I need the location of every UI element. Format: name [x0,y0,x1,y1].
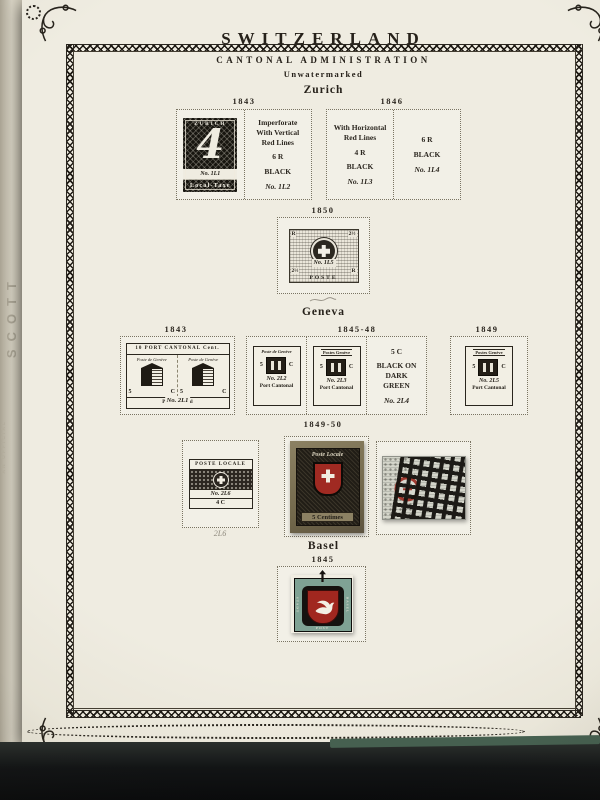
stamp-inscription: Port Cantonal No. 2L1 [127,397,229,408]
stamp-space-zurich-1846: With Horizontal Red Lines 4 R BLACK No. … [326,109,461,200]
space-desc: Red Lines [262,138,294,148]
stamp-space-zurich-1843: ZURICH 4 No. 1L1 Local-Taxe Imperforate … [176,109,312,200]
space-desc: Imperforate [258,118,297,128]
stamp-corner-value: 2½ [291,268,300,274]
stamp-space-geneva-1845-48: Poste de Genève 5C No. 2L2 Port Cantonal… [246,336,427,415]
stamp-value: C [171,389,175,395]
stamp-inscription: Postes Genève [473,349,504,356]
catalog-number: No. 1L3 [348,177,373,186]
basel-dove-design: STADT BASEL POST [294,578,352,632]
stamp-space-geneva-5c: Poste Locale 5 Centimes [284,436,369,537]
space-desc: Red Lines [344,133,376,143]
album-photo: SCOTT AN OFFICIAL SWITZERLAND CANTONAL A… [0,0,600,800]
space-value: 5 C [391,347,402,357]
corner-flourish-icon [566,1,600,43]
section-heading-geneva: Geneva [76,306,571,318]
catalog-number: No. 2L3 [327,378,347,384]
stamp-cell-basel: STADT BASEL POST [278,567,365,641]
stamp-inscription: Port Cantonal [260,383,293,389]
stamp-space-geneva-1843: 10 PORT CANTONAL Cent. Poste de Genève 5… [120,336,235,415]
year-label-geneva-1845-48: 1845-48 [338,324,377,334]
space-desc: With Vertical [256,128,299,138]
stamp-cell-1l2: Imperforate With Vertical Red Lines 6 R … [244,110,312,199]
stamp-inscription: Poste de Genève [261,349,291,354]
pencil-squiggle [308,296,338,304]
page-title: SWITZERLAND [76,29,571,49]
geneva-2l5-space: Postes Genève 5C No. 2L5 Port Cantonal [465,346,513,406]
geneva-arms-icon [478,359,498,376]
stamp-cell-2l6: POSTE LOCALE No. 2L6 4 C [183,441,258,527]
stamp-cell-1l5: R 2½ 2½ R No. 1L5 POSTE [278,218,369,293]
stamp-corner-letter: R [291,231,297,237]
stamp-inscription: BASEL [346,597,350,613]
stamp-inscription: POST [295,626,351,630]
double-geneva-right-half: Poste de Genève 5 C [178,355,229,397]
space-value: 6 R [421,135,432,145]
stamp-space-basel: STADT BASEL POST [277,566,366,642]
basel-dove-stamp: STADT BASEL POST [291,575,353,633]
catalog-number: No. 2L4 [384,396,409,405]
space-value: 4 R [354,148,365,158]
stamp-cell-4c [377,442,470,534]
stamp-cell-1l1: ZURICH 4 No. 1L1 Local-Taxe [177,110,244,199]
stamp-inscription: POSTE LOCALE [190,460,252,470]
year-label-zurich-1850: 1850 [312,205,335,215]
stamp-inscription: Poste Locale [312,452,344,458]
border-lattice-bottom [66,710,581,718]
zurich-1850-stamp: R 2½ 2½ R No. 1L5 POSTE [289,229,359,283]
stamp-inscription: Poste de Genève [137,357,167,362]
stamp-inscription: Poste de Genève [188,357,218,362]
stamp-value: 5 [180,389,183,395]
catalog-number: No. 2L2 [267,376,287,382]
year-label-geneva-1849: 1849 [476,324,499,334]
catalog-number: No. 1L2 [265,182,290,191]
double-geneva-stamp: 10 PORT CANTONAL Cent. Poste de Genève 5… [126,343,230,409]
stamp-numeral: 4 [196,127,224,169]
catalog-number: No. 1L4 [415,165,440,174]
stamp-inscription: Port Cantonal [472,385,505,391]
stamp-cell-2l5: Postes Genève 5C No. 2L5 Port Cantonal [451,337,527,414]
space-color: DARK [385,371,407,381]
geneva-5c-design: Poste Locale 5 Centimes [296,448,360,526]
stamp-cell-2l3: Postes Genève 5C No. 2L3 Port Cantonal [306,337,366,414]
geneva-5c-stamp: Poste Locale 5 Centimes [290,441,364,533]
stamp-value: 4 C [190,498,252,508]
spine-scott-text: SCOTT [4,274,19,358]
swiss-shield-icon [313,462,343,496]
stamp-cell-1l4: 6 R BLACK No. 1L4 [393,110,460,199]
dove-icon [310,596,336,616]
space-color: BLACK ON [377,361,417,371]
space-desc: With Horizontal [334,123,387,133]
space-color: BLACK [414,150,441,160]
year-label-basel-1845: 1845 [312,554,335,564]
stamp-corner-value: 2½ [348,231,357,237]
stamp-value: 5 Centimes [301,512,354,522]
stamp-cell-2l2: Poste de Genève 5C No. 2L2 Port Cantonal [247,337,306,414]
corner-flourish-icon [36,1,78,43]
geneva-2l3-space: Postes Genève 5C No. 2L3 Port Cantonal [313,346,361,406]
page-subtitle: CANTONAL ADMINISTRATION [76,55,571,65]
space-color: BLACK [264,167,291,177]
catalog-number: No. 2L1 [165,396,191,406]
stamp-space-geneva-4c [376,441,471,535]
grid-cancellation [389,456,465,520]
album-page: SWITZERLAND CANTONAL ADMINISTRATION Unwa… [22,0,600,742]
zurich-4r-stamp: ZURICH 4 No. 1L1 Local-Taxe [183,118,237,192]
watermark-note: Unwatermarked [76,69,571,79]
year-label-zurich-1846: 1846 [381,96,404,106]
corner-rosette-icon [26,5,41,20]
geneva-arms-icon [141,368,163,386]
stamp-cell-1l3: With Horizontal Red Lines 4 R BLACK No. … [327,110,393,199]
double-geneva-body: Poste de Genève 5 C Poste de Genève 5 C [127,355,229,397]
stamp-inscription: Postes Genève [321,349,352,356]
stamp-value: C [222,389,226,395]
stamp-inscription: 10 PORT CANTONAL Cent. [127,344,229,355]
spine-official-text: AN OFFICIAL [1,420,7,474]
swiss-cross-icon [213,472,229,488]
stamp-inscription: Port Cantonal [320,385,353,391]
stamp-value: 5 [320,364,323,370]
album-cover [0,742,600,800]
stamp-inscription: POSTE [290,275,358,281]
stamp-value: C [349,364,353,370]
stamp-ornament-field [190,470,252,489]
stamp-value: 5 [260,362,263,368]
stamp-corner-letter: R [351,268,357,274]
stamp-inscription: STADT [296,597,300,613]
year-label-geneva-1843: 1843 [165,324,188,334]
section-heading-basel: Basel [76,540,571,552]
border-lattice-right [575,44,583,716]
stamp-cell-2l1: 10 PORT CANTONAL Cent. Poste de Genève 5… [121,337,234,414]
catalog-number: No. 2L5 [479,378,499,384]
stamp-cell-5c: Poste Locale 5 Centimes [285,437,368,536]
year-label-zurich-1843: 1843 [233,96,256,106]
catalog-number: No. 2L6 [190,489,252,498]
space-color: BLACK [347,162,374,172]
double-geneva-left-half: Poste de Genève 5 C [127,355,179,397]
section-heading-zurich: Zurich [76,84,571,96]
stamp-inscription: Local-Taxe [183,179,237,192]
geneva-arms-icon [192,368,214,386]
catalog-number: No. 1L1 [183,169,237,179]
poste-locale-4c-space: POSTE LOCALE No. 2L6 4 C [189,459,253,509]
space-color: GREEN [383,381,410,391]
stamp-value: 5 [472,364,475,370]
pencil-note: 2L6 [214,529,226,538]
geneva-arms-icon [326,359,346,376]
stamp-space-zurich-1850: R 2½ 2½ R No. 1L5 POSTE [277,217,370,294]
stamp-value: C [289,362,293,368]
geneva-4c-cancelled-stamp [382,456,466,520]
stamp-value: 5 [129,389,132,395]
stamp-value: C [501,364,505,370]
crosier-ornament-icon [319,570,326,582]
geneva-2l2-space: Poste de Genève 5C No. 2L2 Port Cantonal [253,346,301,406]
stamp-cell-2l4: 5 C BLACK ON DARK GREEN No. 2L4 [366,337,426,414]
stamp-space-geneva-1849: Postes Genève 5C No. 2L5 Port Cantonal [450,336,528,415]
space-value: 6 R [272,152,283,162]
catalog-number: No. 1L5 [312,259,336,267]
geneva-arms-icon [266,357,286,374]
stamp-space-poste-locale: POSTE LOCALE No. 2L6 4 C [182,440,259,528]
year-label-geneva-1849-50: 1849-50 [304,419,343,429]
